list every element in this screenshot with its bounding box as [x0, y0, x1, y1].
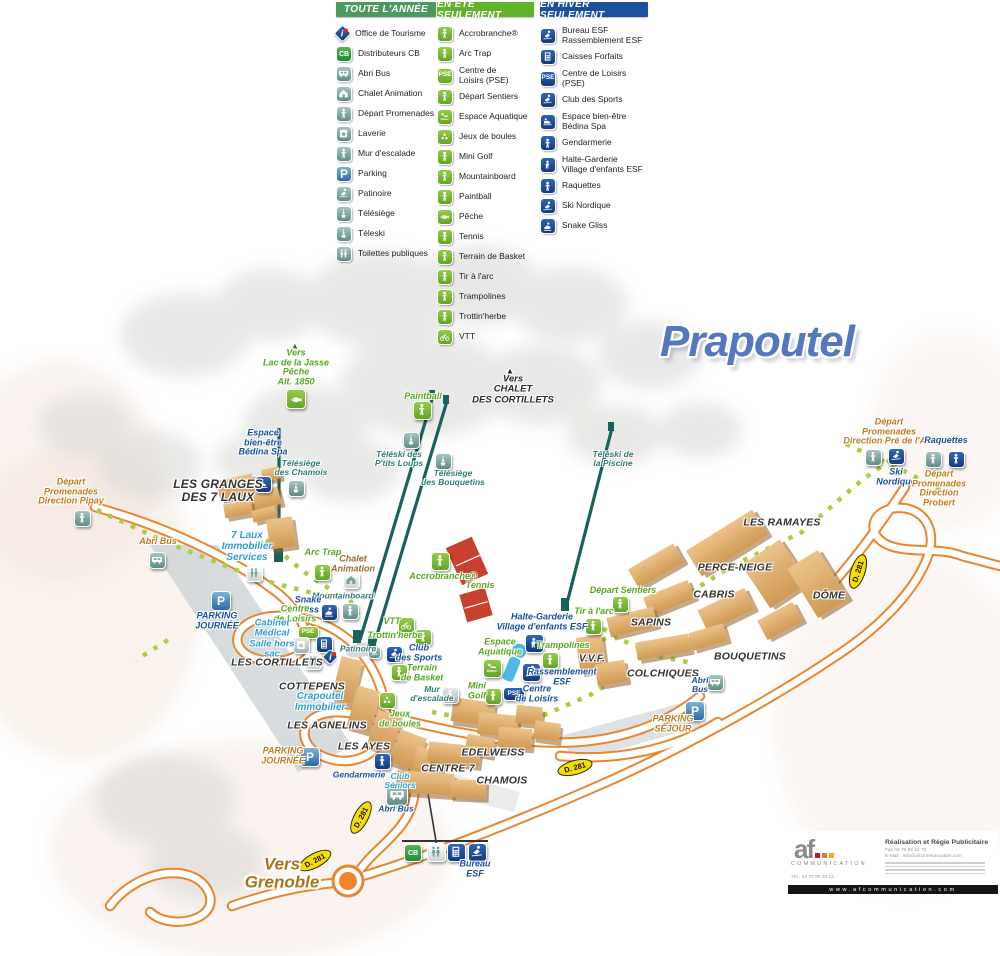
mini-golf-icon [485, 688, 502, 705]
snake-gliss-icon [321, 604, 338, 621]
legend-item-label: Tennis [459, 232, 484, 242]
telesiege-chamois-icon [288, 480, 305, 497]
espace-bien-etre-icon [540, 114, 556, 130]
legend-item-label: Arc Trap [459, 49, 491, 59]
map-label: LES RAMAYES [743, 517, 820, 528]
legend-item: Patinoire [336, 186, 436, 202]
abri-bus-icon [149, 552, 166, 569]
accrobranche-icon [431, 552, 450, 571]
legend-item-label: Accrobranche® [459, 29, 518, 39]
bureau-esf-icon [540, 28, 556, 44]
map-label: SAPINS [631, 617, 671, 628]
parking-icon: P [336, 166, 352, 182]
legend-item: Trottin'herbe [437, 309, 534, 325]
af-communication-label: COMMUNICATION [791, 861, 867, 867]
map-label: BOUQUETINS [714, 651, 786, 662]
legend-item-label: Trampolines [459, 292, 505, 302]
prapoutel-resort-map: TOUTE L'ANNÉEiOffice de TourismeCBDistri… [0, 0, 1000, 956]
mur-escalade-icon [336, 146, 352, 162]
legend-item-label: Pêche [459, 212, 483, 222]
map-label: Vers CHALET DES CORTILLETS [472, 375, 554, 406]
vtt-icon [437, 329, 453, 345]
map-label: Raquettes [924, 436, 968, 446]
legend-item: Jeux de boules [437, 129, 534, 145]
snake-gliss-icon [540, 218, 556, 234]
icon-text: P [217, 595, 225, 607]
compass-glyph: i [328, 652, 331, 662]
logo-square-orange [822, 853, 827, 858]
terrain-basket-icon [437, 249, 453, 265]
tir-arc-icon [437, 269, 453, 285]
map-label: Club des Sports [396, 643, 443, 662]
building [533, 720, 561, 741]
caisses-forfaits-icon [540, 49, 556, 65]
legend-item-label: Abri Bus [358, 69, 390, 79]
abri-bus-icon [707, 674, 724, 691]
depart-promenades-pipay-icon [74, 510, 91, 527]
map-label: Abri Bus [692, 676, 709, 694]
map-label: Gendarmerie [333, 770, 385, 779]
map-label: PERCE-NEIGE [698, 562, 773, 573]
legend-item-label: Mini Golf [459, 152, 493, 162]
af-logo: af [794, 839, 834, 860]
map-label: Paintball [404, 392, 442, 402]
legend-item: Caisses Forfaits [540, 49, 648, 65]
map-label: Vers Grenoble [245, 856, 320, 893]
teleski-icon [336, 226, 352, 242]
map-label: Mur d'escalade [410, 685, 453, 703]
legend-item: Départ Promenades [336, 106, 436, 122]
patinoire-icon [336, 186, 352, 202]
telesiege-icon [336, 206, 352, 222]
legend-item-label: Mountainboard [459, 172, 516, 182]
phone-number: Tél : 04 70 99 25 12 [791, 875, 834, 880]
map-label: Télésiège des Bouquetins [421, 469, 485, 487]
legend-item-label: Halte-Garderie Village d'enfants ESF [562, 155, 643, 174]
map-label: PARKING JOURNÉE [195, 611, 239, 630]
legend-header: EN HIVER SEULEMENT [540, 2, 648, 17]
compass-glyph: i [341, 29, 344, 39]
legend-item-label: Mur d'escalade [358, 149, 415, 159]
legend-header: TOUTE L'ANNÉE [336, 2, 436, 17]
legend-item-label: Départ Promenades [358, 109, 434, 119]
legend-item: Gendarmerie [540, 135, 648, 151]
legend-item-label: Jeux de boules [459, 132, 516, 142]
map-label: CENTRE 7 [421, 763, 475, 774]
legend-item: Mini Golf [437, 149, 534, 165]
legend-column-2: EN ÉTÉ SEULEMENTAccrobranche®Arc TrapPSE… [437, 2, 534, 349]
af-logo-text: af [794, 834, 813, 864]
abri-bus-icon [336, 66, 352, 82]
arc-trap-icon [437, 46, 453, 62]
map-label: Téléski des P'tits Loups [375, 450, 423, 468]
legend-item: Tennis [437, 229, 534, 245]
map-label: Club Séniors [384, 772, 415, 790]
legend-item: iOffice de Tourisme [336, 26, 436, 42]
legend-column-3: EN HIVER SEULEMENTBureau ESF Rassembleme… [540, 2, 648, 238]
legend-item-label: Télésiège [358, 209, 395, 219]
fax-number: Fax 04 70 82 22 72 [885, 848, 926, 853]
map-label: Départ Promenades Direction Probert [909, 470, 970, 509]
map-label: PARKING SÉJOUR [653, 714, 694, 733]
distributeurs-cb-icon: CB [336, 46, 352, 62]
legend-item: Abri Bus [336, 66, 436, 82]
icon-text: P [306, 751, 314, 763]
laverie-icon [293, 637, 310, 654]
icon-text: P [340, 168, 348, 180]
legend-item-label: Espace Aquatique [459, 112, 528, 122]
map-label: Abri Bus [139, 537, 177, 547]
logo-square-yellow [829, 853, 834, 858]
raquettes-icon [948, 451, 965, 468]
legend-item: Terrain de Basket [437, 249, 534, 265]
legend-item-label: Trottin'herbe [459, 312, 506, 322]
legend-item: Ski Nordique [540, 198, 648, 214]
map-label: Tennis [466, 581, 495, 591]
legend-item-label: Centre de Loisirs (PSE) [459, 66, 509, 85]
map-label: Centre de Loisirs [516, 684, 559, 703]
icon-text: CB [339, 51, 349, 58]
legend-item-label: Snake Gliss [562, 221, 607, 231]
teleski-ptits-loups-icon [403, 432, 420, 449]
icon-text: CB [408, 850, 418, 857]
arc-trap-icon [314, 564, 331, 581]
map-label: Jeux de boules [379, 709, 421, 728]
legend-item-label: Paintball [459, 192, 492, 202]
credit-title: Réalisation et Régie Publicitaire [885, 839, 988, 846]
map-label: Espace Aquatique [478, 637, 522, 656]
ski-nordique-icon [540, 198, 556, 214]
legend-item-label: Terrain de Basket [459, 252, 525, 262]
legend-item: Chalet Animation [336, 86, 436, 102]
map-label: Chalet Animation [331, 554, 375, 573]
legend-item: Laverie [336, 126, 436, 142]
legend-item-label: Office de Tourisme [355, 29, 426, 39]
toilettes-publiques-icon [336, 246, 352, 262]
map-label: Mini Golf [468, 681, 486, 700]
espace-aquatique-icon [483, 659, 502, 678]
legend-item-label: Laverie [358, 129, 386, 139]
halte-garderie-icon [540, 157, 556, 173]
parking-icon: P [211, 591, 231, 611]
centre-loisirs-pse-icon: PSE [540, 71, 556, 87]
map-label: 7 Laux Immobilier Services [222, 531, 273, 563]
map-label: Patinoire [340, 644, 376, 653]
legend-item: Espace bien-être Bédina Spa [540, 112, 648, 131]
legend-item-label: Parking [358, 169, 387, 179]
legend-item-label: Gendarmerie [562, 138, 612, 148]
legend-item: Trampolines [437, 289, 534, 305]
map-label: Départ Promenades Direction Pipay [38, 477, 104, 506]
trottin-herbe-icon [437, 309, 453, 325]
legend-item-label: Bureau ESF Rassemblement ESF [562, 26, 642, 45]
logo-square-red [815, 853, 820, 858]
legend-item-label: Patinoire [358, 189, 392, 199]
legend-item: Toilettes publiques [336, 246, 436, 262]
website-url: www.afcommunication.com [788, 885, 998, 894]
legend-item: Pêche [437, 209, 534, 225]
map-label: Départ Promenades Direction Pré de l'Arc [843, 417, 934, 446]
legend-item: PSECentre de Loisirs (PSE) [540, 69, 648, 88]
toilettes-icon [427, 843, 446, 862]
map-label: Bureau ESF [459, 859, 490, 878]
legend-item-label: Espace bien-être Bédina Spa [562, 112, 626, 131]
map-label: Crapoutel Immobilier [295, 692, 346, 714]
legend-item: Tir à l'arc [437, 269, 534, 285]
map-label: Téléski de la Piscine [592, 450, 633, 468]
club-des-sports-icon [540, 92, 556, 108]
map-label: COLCHIQUES [627, 668, 699, 679]
map-label: VTT [384, 617, 401, 627]
map-label: V.V.F. [579, 655, 605, 666]
centre-loisirs-pse-icon: PSE [437, 68, 453, 84]
mountainboard-icon [342, 603, 359, 620]
fine-print [885, 862, 985, 876]
espace-aquatique-icon [437, 109, 453, 125]
ski-nordique-icon [888, 448, 905, 465]
map-label: Tir à l'arc [574, 607, 614, 617]
gendarmerie-icon [540, 135, 556, 151]
email: E-Mail : info@afcommunication.com [885, 854, 962, 859]
peche-icon [286, 389, 306, 409]
walker-icon [925, 451, 942, 468]
legend-item: Mountainboard [437, 169, 534, 185]
map-label: EDELWEISS [461, 747, 524, 758]
legend-column-1: TOUTE L'ANNÉEiOffice de TourismeCBDistri… [336, 2, 436, 266]
trampolines-icon [437, 289, 453, 305]
jeux-de-boules-icon [437, 129, 453, 145]
chalet-animation-icon [343, 572, 360, 589]
legend-item: Télésiège [336, 206, 436, 222]
chalet-animation-icon [336, 86, 352, 102]
legend-item-label: Ski Nordique [562, 201, 611, 211]
legend-item-label: Caisses Forfaits [562, 52, 623, 62]
map-label: CABRIS [693, 589, 734, 600]
map-label: LES AYES [338, 741, 390, 752]
legend-item: Arc Trap [437, 46, 534, 62]
map-label: Trottin'herbe [368, 631, 423, 641]
map-label: LES CORTILLETS [231, 657, 323, 668]
mini-golf-icon [437, 149, 453, 165]
legend-item-label: Tir à l'arc [459, 272, 493, 282]
map-label: Espace bien-être Bédina Spa [238, 428, 287, 457]
walker-icon [865, 449, 882, 466]
icon-text: PSE [541, 75, 554, 82]
legend-item: Espace Aquatique [437, 109, 534, 125]
tennis-icon [437, 229, 453, 245]
legend-item: Snake Gliss [540, 218, 648, 234]
legend-item-label: VTT [459, 332, 475, 342]
paintball-icon [413, 401, 432, 420]
legend-item-label: Raquettes [562, 181, 601, 191]
laverie-icon [336, 126, 352, 142]
legend-item-label: Club des Sports [562, 95, 622, 105]
legend-item-label: Chalet Animation [358, 89, 422, 99]
legend-item: Mur d'escalade [336, 146, 436, 162]
gendarmerie-icon [374, 753, 391, 770]
map-label: Trampolines [536, 641, 589, 651]
depart-promenades-icon [336, 106, 352, 122]
map-label: LES AGNELINS [287, 720, 367, 731]
legend-item: PParking [336, 166, 436, 182]
legend-item: CBDistributeurs CB [336, 46, 436, 62]
paintball-icon [437, 189, 453, 205]
legend-item: Raquettes [540, 178, 648, 194]
map-label: Télésiège des Chamois [275, 459, 328, 477]
map-label: PARKING JOURNÉE [261, 746, 305, 765]
toilettes-icon [246, 565, 263, 582]
legend-item: Paintball [437, 189, 534, 205]
legend-header: EN ÉTÉ SEULEMENT [437, 2, 534, 17]
map-label: Abri Bus [378, 804, 413, 813]
legend-item: Accrobranche® [437, 26, 534, 42]
legend-item-label: Centre de Loisirs (PSE) [562, 69, 626, 88]
legend-item: Halte-Garderie Village d'enfants ESF [540, 155, 648, 174]
icon-text: PSE [301, 629, 314, 636]
legend-item: Départ Sentiers [437, 89, 534, 105]
legend-item: Bureau ESF Rassemblement ESF [540, 26, 648, 45]
mountainboard-icon [437, 169, 453, 185]
distributeurs-cb-icon: CB [404, 844, 422, 862]
raquettes-icon [540, 178, 556, 194]
legend-item: Club des Sports [540, 92, 648, 108]
legend-item: Téleski [336, 226, 436, 242]
jeux-boules-icon [379, 692, 396, 709]
legend-item-label: Départ Sentiers [459, 92, 518, 102]
icon-text: PSE [438, 72, 451, 79]
map-label: Départ Sentiers [590, 586, 657, 596]
depart-sentiers-icon [437, 89, 453, 105]
map-label: Terrain de Basket [401, 663, 444, 682]
peche-icon [437, 209, 453, 225]
map-label: CHAMOIS [477, 775, 528, 786]
legend-item-label: Toilettes publiques [358, 249, 428, 259]
map-label: Prapoutel [660, 318, 854, 366]
map-label: DÔME [813, 590, 845, 601]
legend-item-label: Téleski [358, 229, 385, 239]
legend-item: VTT [437, 329, 534, 345]
af-communication-credit: af COMMUNICATION Tél : 04 70 99 25 12 Ré… [780, 831, 998, 895]
legend-item-label: Distributeurs CB [358, 49, 420, 59]
map-label: LES GRANGES DES 7 LAUX [173, 478, 263, 504]
office-tourisme-icon: i [333, 25, 352, 44]
accrobranche-icon [437, 26, 453, 42]
map-label: Vers Lac de la Jasse Pêche Alt. 1850 [263, 349, 329, 388]
legend-item: PSECentre de Loisirs (PSE) [437, 66, 534, 85]
map-label: Cabinet Médical Salle hors sac [249, 619, 294, 660]
